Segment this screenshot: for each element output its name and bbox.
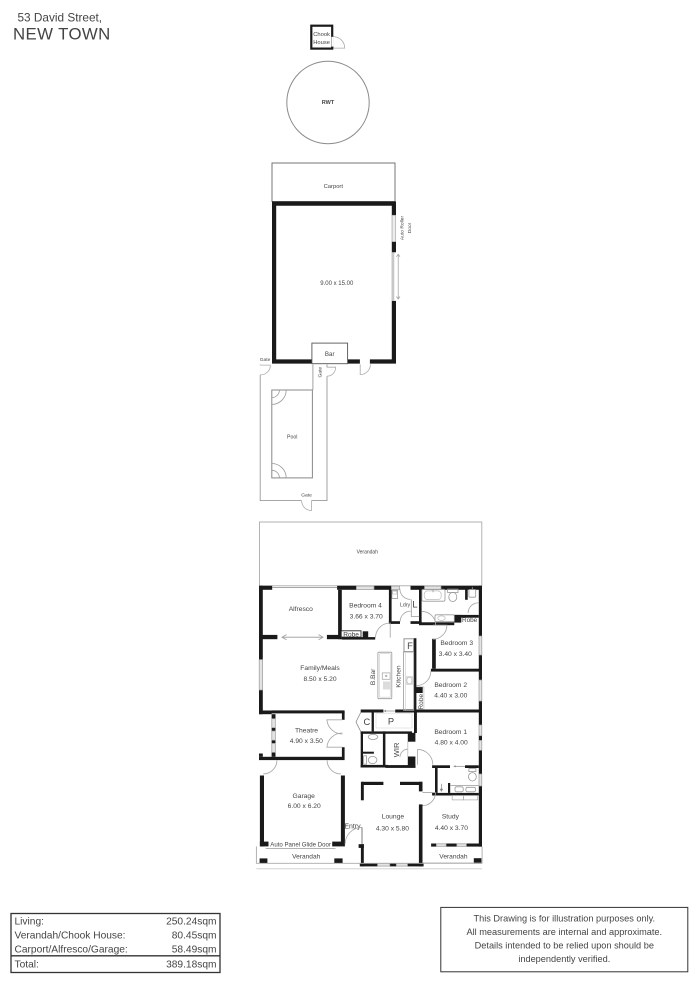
svg-text:Verandah: Verandah [439,854,468,861]
svg-text:8.50 x 5.20: 8.50 x 5.20 [303,676,336,683]
svg-text:P: P [388,717,394,727]
svg-text:Total:: Total: [15,960,39,971]
svg-text:Auto Panel Glide Door: Auto Panel Glide Door [270,841,331,848]
svg-text:Carport/Alfresco/Garage:: Carport/Alfresco/Garage: [15,945,128,956]
svg-text:NEW TOWN: NEW TOWN [13,25,111,44]
svg-text:9.00 x 15.00: 9.00 x 15.00 [320,281,354,287]
svg-text:Lounge: Lounge [382,814,405,821]
svg-text:Living:: Living: [15,917,44,928]
svg-text:Kitchen: Kitchen [396,665,403,688]
svg-text:389.18sqm: 389.18sqm [166,960,216,971]
svg-text:Details intended to be relied: Details intended to be relied upon shoul… [475,941,654,951]
svg-text:Gate: Gate [301,493,312,499]
svg-text:Gate: Gate [318,367,324,378]
svg-text:58.49sqm: 58.49sqm [172,945,217,956]
svg-text:Garage: Garage [293,793,316,800]
svg-text:Bedroom 3: Bedroom 3 [440,640,473,647]
svg-text:Verandah/Chook House:: Verandah/Chook House: [15,931,126,942]
svg-text:Chook: Chook [313,32,330,38]
svg-text:Robe: Robe [343,632,359,639]
svg-text:B.Bar: B.Bar [370,668,377,685]
svg-text:4.40 x 3.00: 4.40 x 3.00 [434,693,467,700]
svg-text:3.40 x 3.40: 3.40 x 3.40 [439,651,472,658]
svg-text:Bedroom 4: Bedroom 4 [349,602,382,609]
svg-text:Alfresco: Alfresco [289,606,313,613]
svg-text:Verandah: Verandah [292,854,321,861]
svg-text:Bedroom 2: Bedroom 2 [434,682,467,689]
svg-text:C: C [363,717,370,727]
svg-text:House: House [313,40,330,46]
svg-text:4.40 x 3.70: 4.40 x 3.70 [435,825,468,832]
svg-text:All measurements are internal: All measurements are internal and approx… [467,927,663,937]
svg-text:Study: Study [442,813,460,820]
svg-text:RWT: RWT [322,100,335,106]
svg-text:3.66 x 3.70: 3.66 x 3.70 [350,614,383,621]
svg-text:53 David Street,: 53 David Street, [18,11,103,25]
svg-text:Ldry: Ldry [400,602,410,608]
svg-text:Entry: Entry [344,823,361,830]
svg-text:Family/Meals: Family/Meals [300,665,340,672]
svg-text:6.00 x 6.20: 6.00 x 6.20 [288,803,321,810]
svg-text:80.45sqm: 80.45sqm [172,931,217,942]
svg-text:4.90 x 3.50: 4.90 x 3.50 [290,738,323,745]
svg-text:Robe: Robe [418,694,425,710]
svg-text:Auto Roller: Auto Roller [399,216,405,241]
svg-text:4.30 x 5.80: 4.30 x 5.80 [376,825,409,832]
svg-text:This Drawing is for illustrati: This Drawing is for illustration purpose… [473,914,655,924]
svg-text:Theatre: Theatre [295,728,318,735]
svg-text:independently verified.: independently verified. [518,954,610,964]
svg-text:Bar: Bar [325,351,335,358]
svg-text:Bedroom 1: Bedroom 1 [434,729,467,736]
svg-text:Verandah: Verandah [357,549,379,555]
svg-text:4.80 x 4.00: 4.80 x 4.00 [435,740,468,747]
svg-text:L: L [412,600,417,610]
svg-text:Carport: Carport [324,184,344,190]
svg-text:Gate: Gate [260,357,271,363]
svg-text:F: F [407,641,413,651]
svg-text:Door: Door [407,222,413,233]
svg-text:250.24sqm: 250.24sqm [166,917,216,928]
svg-text:Robe: Robe [462,617,478,624]
svg-text:Pool: Pool [287,434,297,440]
